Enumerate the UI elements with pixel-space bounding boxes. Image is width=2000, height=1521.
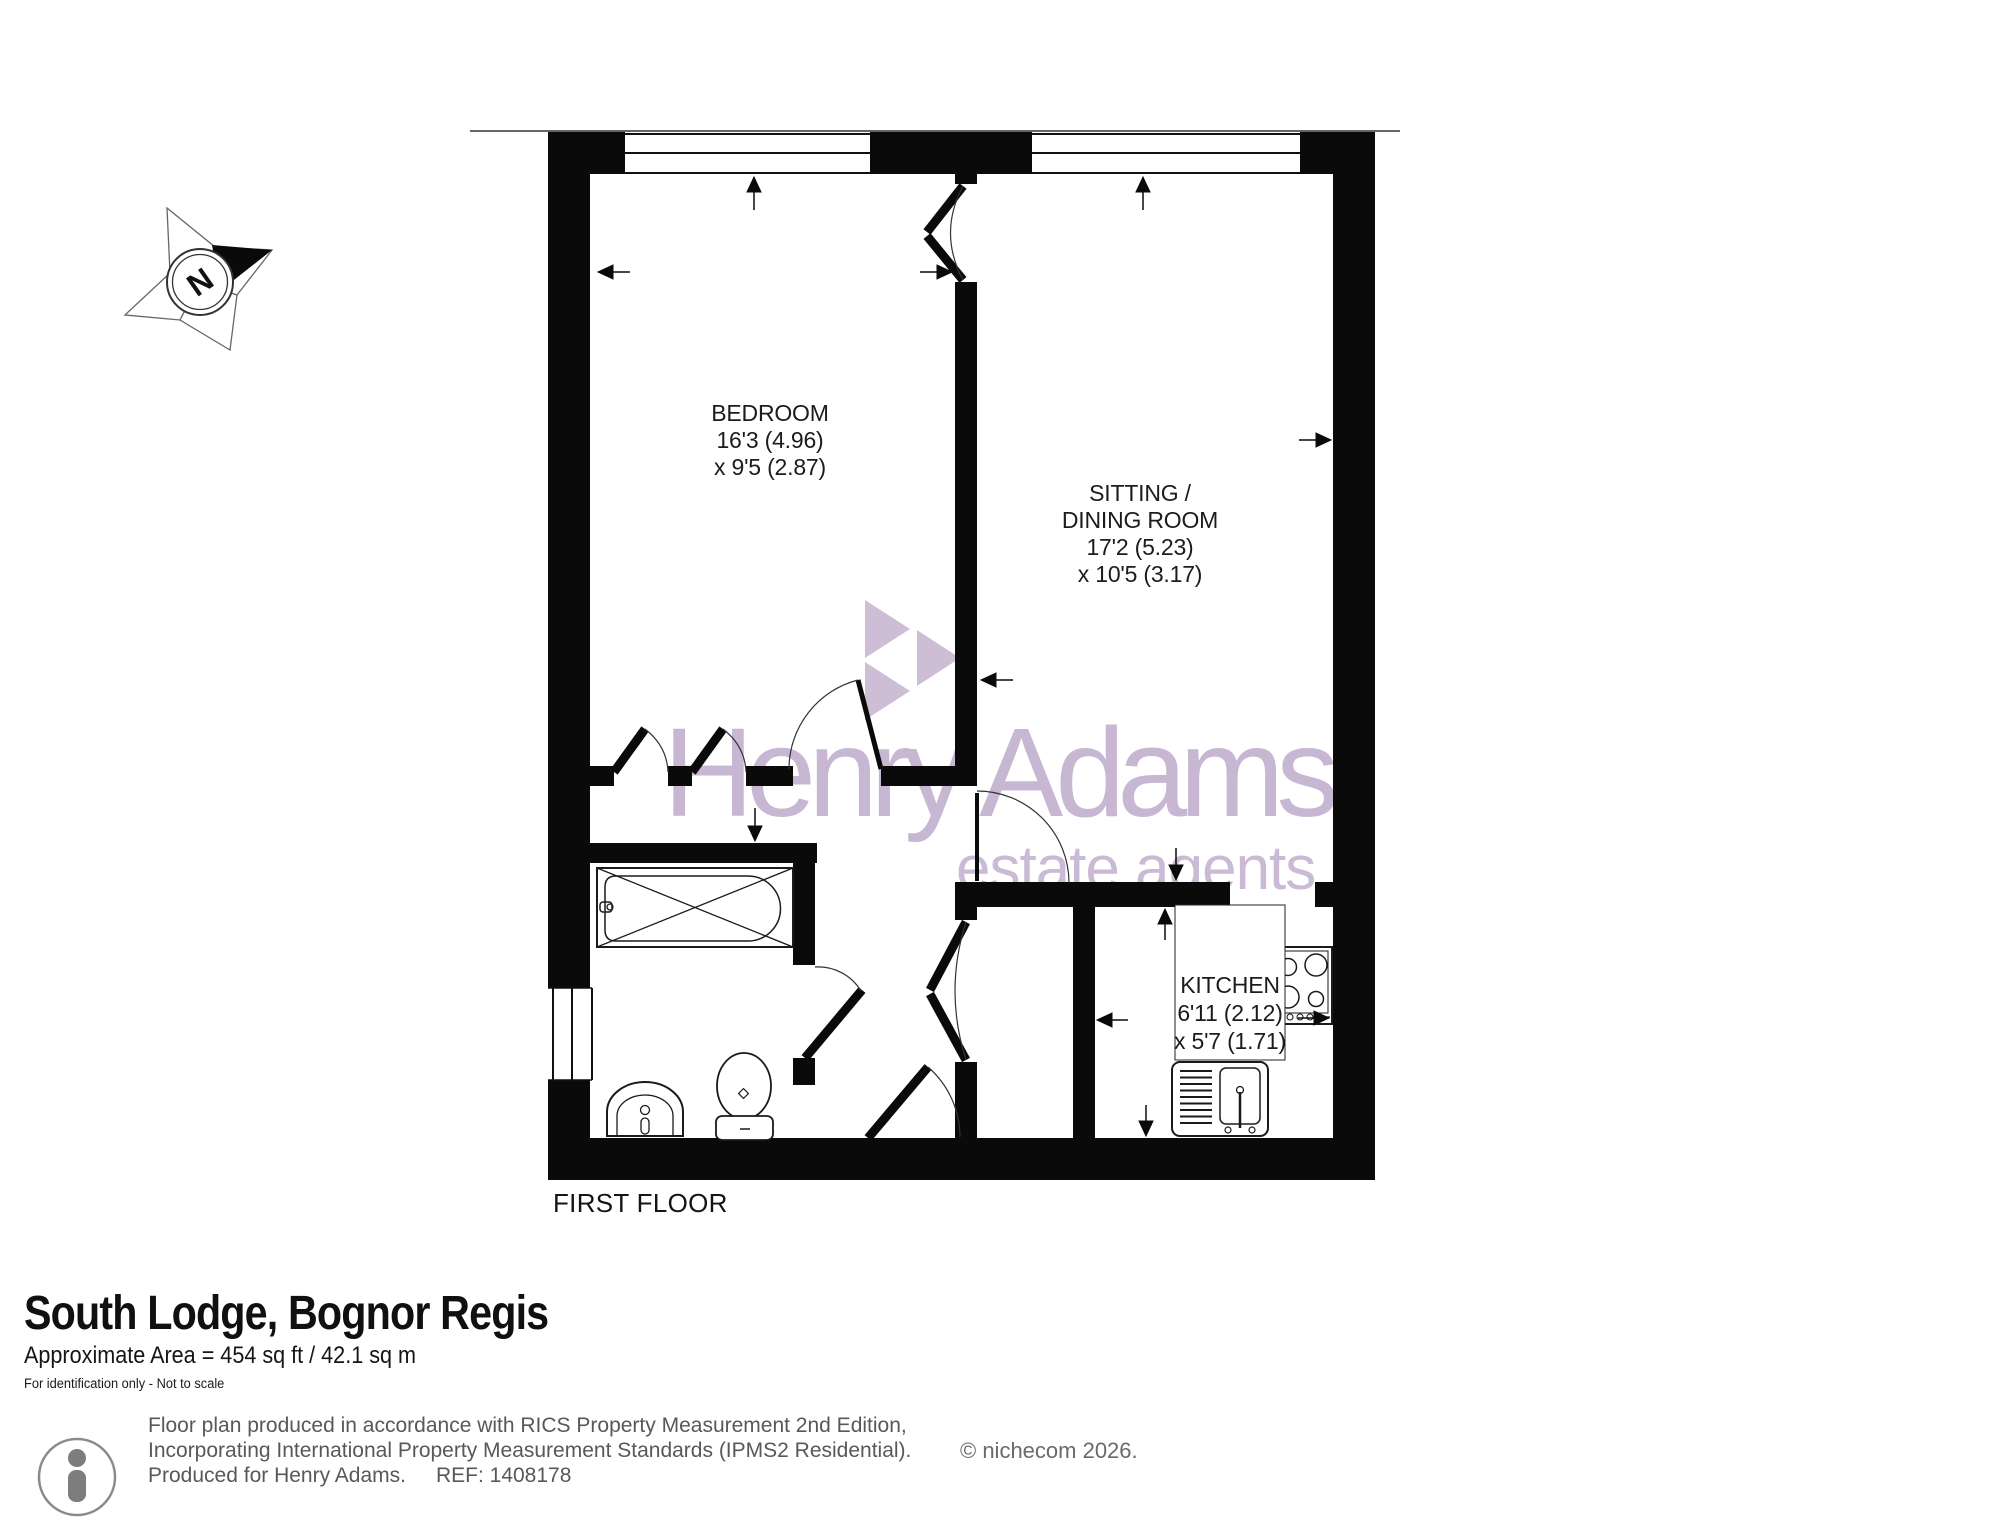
- footer-produced-for: Produced for Henry Adams.: [148, 1464, 406, 1487]
- arrow-right-sitting: [1299, 433, 1331, 447]
- bedroom-dim-1: 16'3 (4.96): [680, 427, 860, 454]
- person-icon: [39, 1439, 115, 1515]
- arrow-up-bedroom-window: [747, 177, 761, 210]
- arrow-left-kitchen: [1097, 1013, 1128, 1027]
- sitting-window: [1032, 132, 1300, 174]
- footer-line-1: Floor plan produced in accordance with R…: [148, 1414, 907, 1438]
- sitting-name-2: DINING ROOM: [1040, 507, 1240, 534]
- bedroom-dim-2: x 9'5 (2.87): [680, 454, 860, 481]
- sitting-dim-1: 17'2 (5.23): [1040, 534, 1240, 561]
- arrow-down-kitchen: [1139, 1105, 1153, 1136]
- watermark-logo-icon: [865, 600, 960, 720]
- floor-label: FIRST FLOOR: [553, 1188, 728, 1219]
- kitchen-name: KITCHEN: [1155, 971, 1305, 999]
- disclaimer: For identification only - Not to scale: [24, 1376, 224, 1391]
- footer-ref: REF: 1408178: [436, 1464, 571, 1487]
- kitchen-label: KITCHEN 6'11 (2.12) x 5'7 (1.71): [1155, 971, 1305, 1055]
- door-swings: [614, 186, 1069, 1138]
- kitchen-dim-1: 6'11 (2.12): [1155, 999, 1305, 1027]
- bathroom-window: [548, 988, 592, 1080]
- entrance-door: [868, 1067, 960, 1138]
- sitting-dim-2: x 10'5 (3.17): [1040, 561, 1240, 588]
- area-line: Approximate Area = 454 sq ft / 42.1 sq m: [24, 1342, 416, 1370]
- footer-line-2: Incorporating International Property Mea…: [148, 1439, 911, 1463]
- arrow-left-sitting: [981, 673, 1013, 687]
- kitchen-dim-2: x 5'7 (1.71): [1155, 1027, 1305, 1055]
- sitting-door: [977, 791, 1069, 883]
- basin-icon: [607, 1082, 683, 1136]
- cupboard-bifold-door: [930, 922, 966, 1060]
- bathroom-door: [805, 967, 862, 1058]
- wardrobe-doors: [614, 729, 746, 772]
- bedroom-name: BEDROOM: [680, 400, 860, 427]
- sitting-room-label: SITTING / DINING ROOM 17'2 (5.23) x 10'5…: [1040, 480, 1240, 588]
- bifold-door-bedroom: [927, 186, 963, 280]
- arrow-up-kitchen: [1158, 909, 1172, 940]
- floorplan-page: Henry Adams estate agents: [0, 0, 2000, 1521]
- toilet-icon: [716, 1053, 773, 1140]
- arrow-down-bedroom: [748, 808, 762, 841]
- page-title: South Lodge, Bognor Regis: [24, 1286, 548, 1341]
- arrow-down-sitting: [1169, 848, 1183, 880]
- sink-icon: [1172, 1062, 1268, 1136]
- compass-icon: N: [125, 208, 272, 350]
- sitting-name-1: SITTING /: [1040, 480, 1240, 507]
- arrow-left-bedroom: [598, 265, 630, 279]
- bath-icon: [597, 868, 793, 947]
- footer-line-3: Produced for Henry Adams.REF: 1408178: [148, 1464, 571, 1488]
- bedroom-window: [625, 132, 870, 174]
- footer-copyright: © nichecom 2026.: [960, 1438, 1138, 1464]
- arrow-up-sitting-window: [1136, 177, 1150, 210]
- bedroom-label: BEDROOM 16'3 (4.96) x 9'5 (2.87): [680, 400, 860, 481]
